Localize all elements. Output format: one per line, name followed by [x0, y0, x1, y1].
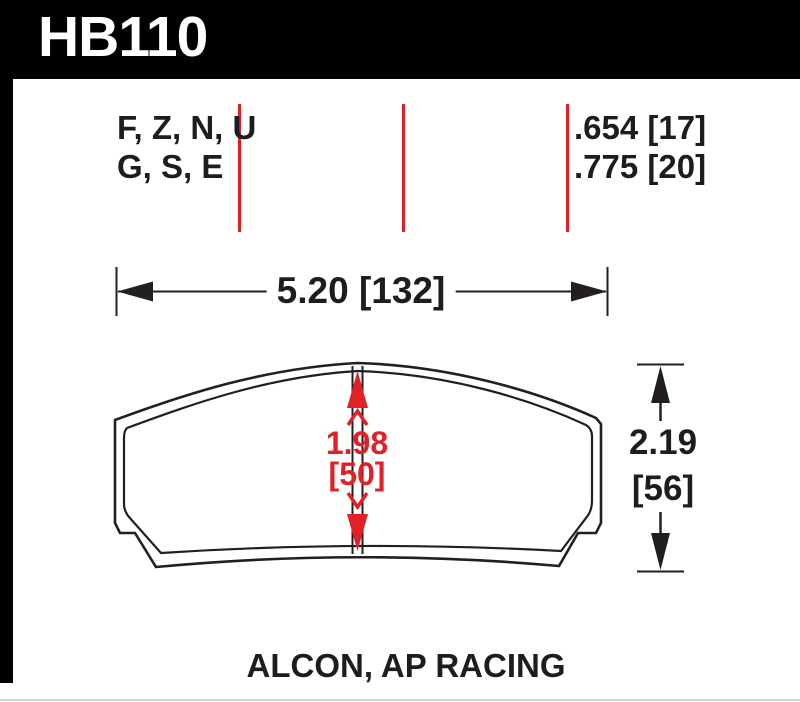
applications-label: ALCON, AP RACING [246, 648, 565, 684]
pad-thickness-line2: .775 [20] [574, 147, 706, 186]
overall-height-mm-label: [56] [632, 471, 694, 507]
center-height-inches-label: 1.98 [326, 427, 388, 459]
compound-codes-line1: F, Z, N, U [117, 108, 256, 147]
right-arrowhead-icon [571, 282, 607, 302]
center-height-mm-label: [50] [329, 458, 386, 490]
down-arrowhead-icon [651, 533, 670, 570]
overall-height-inches-label: 2.19 [629, 425, 697, 461]
compound-codes-line2: G, S, E [117, 147, 223, 186]
overall-height-dimension [637, 365, 684, 572]
red-reference-lines [240, 104, 568, 232]
brake-pad-spec-sheet: HB110 [0, 0, 800, 702]
up-arrowhead-icon [651, 366, 670, 403]
left-arrowhead-icon [117, 282, 153, 302]
pad-width-dimension-label: 5.20 [132] [267, 270, 456, 312]
diagram-artwork [0, 0, 800, 702]
pad-thickness-line1: .654 [17] [574, 108, 706, 147]
